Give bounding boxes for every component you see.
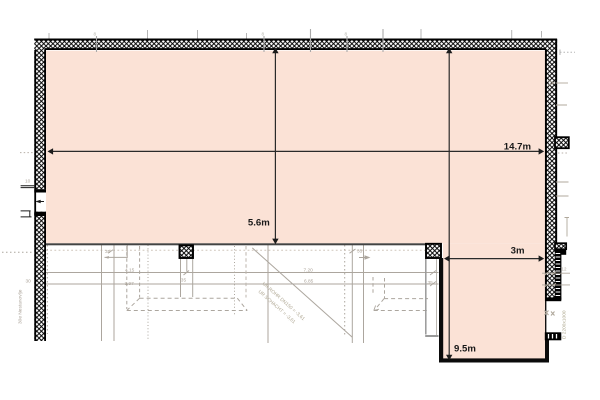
svg-text:12: 12: [562, 267, 568, 272]
svg-text:D 2200x1000: D 2200x1000: [562, 310, 568, 339]
svg-text:7.20: 7.20: [304, 267, 314, 273]
svg-text:35: 35: [357, 248, 363, 254]
svg-text:30e Nestanovlje: 30e Nestanovlje: [18, 289, 24, 324]
svg-text:8: 8: [94, 32, 97, 37]
svg-text:10: 10: [25, 179, 31, 185]
svg-text:30: 30: [26, 278, 32, 284]
svg-text:14.7m: 14.7m: [504, 141, 531, 152]
svg-text:5.6m: 5.6m: [248, 217, 270, 228]
svg-text:4.15: 4.15: [125, 268, 135, 274]
svg-text:35: 35: [181, 278, 187, 284]
svg-text:35: 35: [105, 249, 111, 255]
svg-text:6.85: 6.85: [304, 278, 314, 284]
svg-text:9.5m: 9.5m: [454, 344, 476, 355]
svg-text:35: 35: [428, 280, 434, 286]
svg-text:3.97: 3.97: [125, 281, 135, 287]
svg-text:8: 8: [262, 32, 265, 37]
svg-text:3m: 3m: [511, 245, 525, 256]
svg-text:8: 8: [345, 32, 348, 37]
